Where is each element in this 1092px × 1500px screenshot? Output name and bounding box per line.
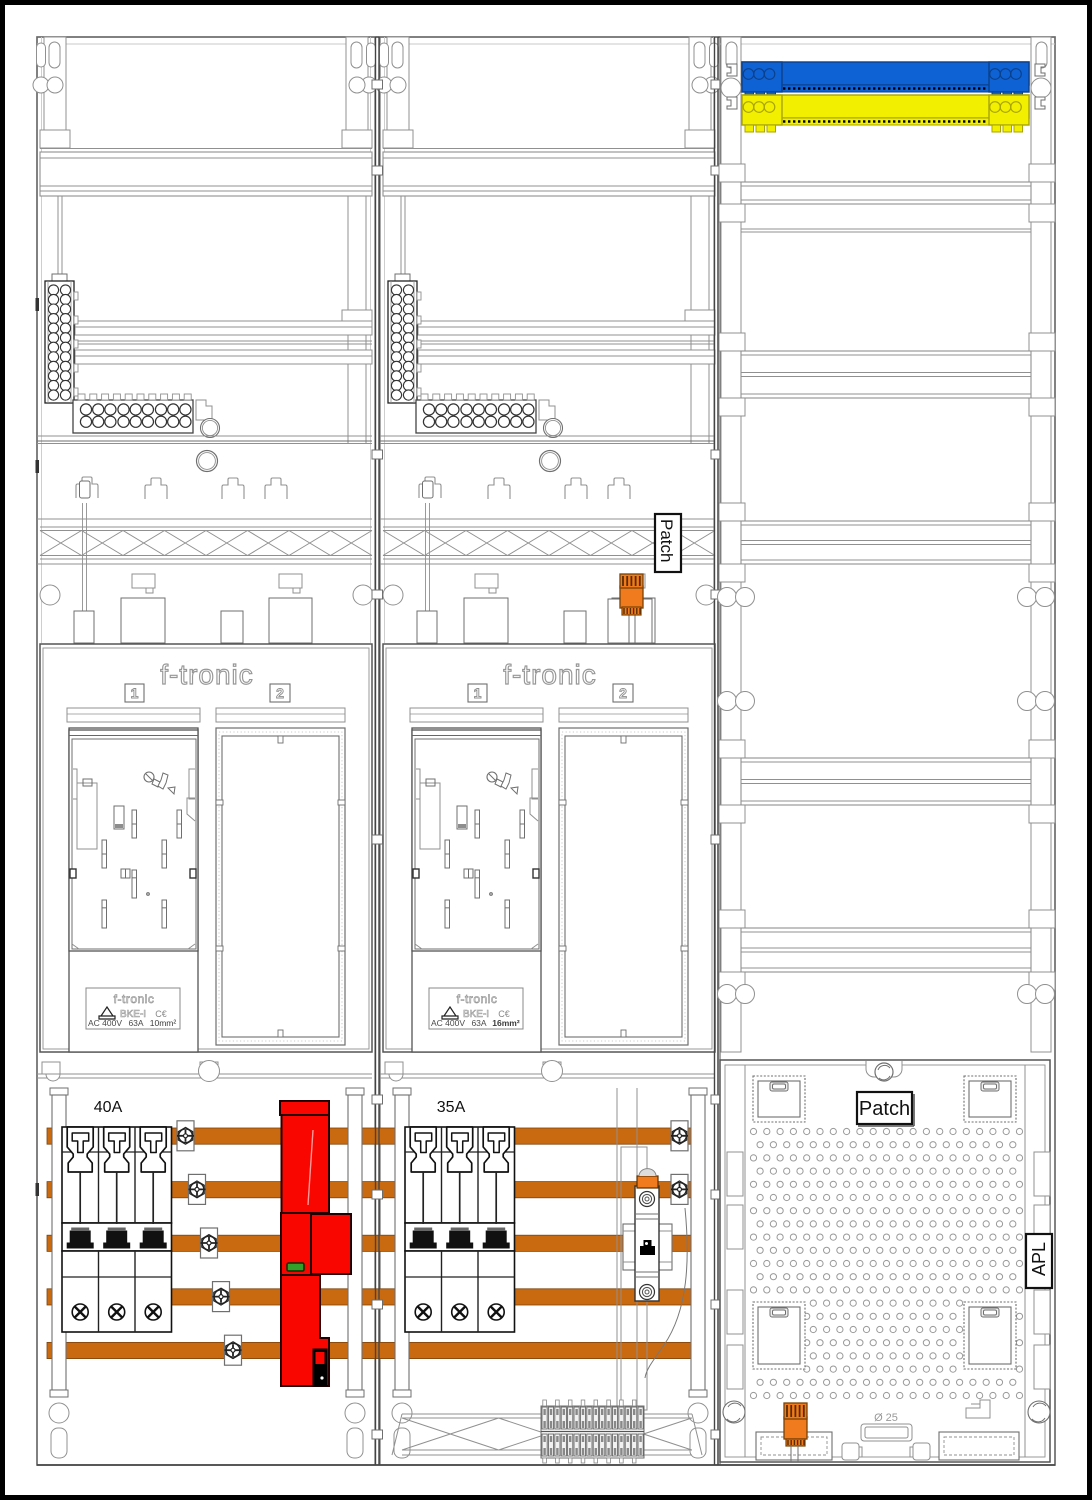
svg-text:35A: 35A [437,1099,466,1116]
svg-text:2: 2 [619,685,627,701]
svg-text:Ø 25: Ø 25 [874,1412,898,1424]
svg-text:APL: APL [1029,1242,1049,1276]
svg-text:63A: 63A [128,1018,143,1028]
svg-text:Patch: Patch [657,519,676,562]
svg-text:63A: 63A [471,1018,486,1028]
svg-text:2: 2 [276,685,284,701]
svg-text:Patch: Patch [859,1098,910,1120]
svg-text:1: 1 [131,685,139,701]
svg-text:f-tronic: f-tronic [503,659,597,690]
svg-text:AC 400V: AC 400V [88,1018,122,1028]
svg-text:1: 1 [474,685,482,701]
svg-text:40A: 40A [94,1099,123,1116]
svg-text:16mm²: 16mm² [492,1018,520,1028]
svg-text:10mm²: 10mm² [150,1018,177,1028]
svg-text:AC 400V: AC 400V [431,1018,465,1028]
svg-text:f-tronic: f-tronic [160,659,254,690]
svg-text:f-tronic: f-tronic [457,992,498,1006]
svg-text:f-tronic: f-tronic [114,992,155,1006]
